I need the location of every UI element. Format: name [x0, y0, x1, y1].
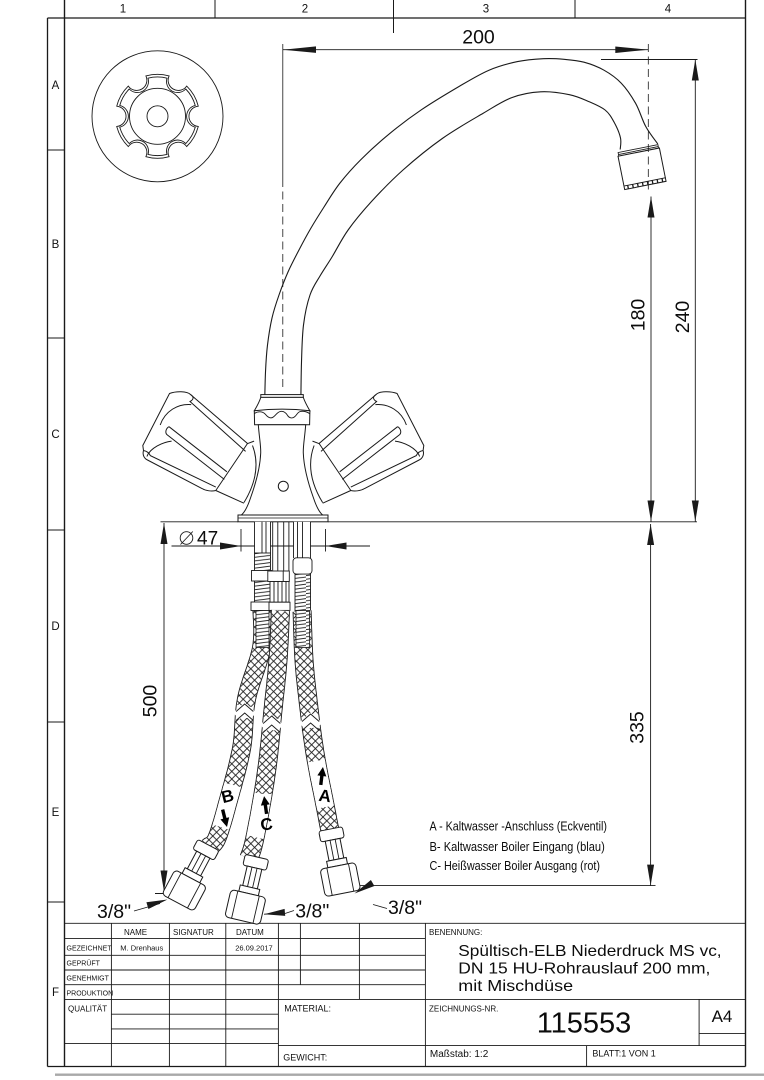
svg-text:SIGNATUR: SIGNATUR — [173, 928, 214, 937]
svg-text:C: C — [259, 814, 274, 835]
svg-text:GENEHMIGT: GENEHMIGT — [67, 976, 110, 983]
svg-text:A: A — [318, 786, 333, 806]
svg-text:GEPRÜFT: GEPRÜFT — [67, 960, 101, 968]
svg-text:B: B — [52, 239, 60, 251]
svg-text:Spültisch-ELB Niederdruck MS v: Spültisch-ELB Niederdruck MS vc, — [458, 943, 721, 960]
svg-text:MATERIAL:: MATERIAL: — [284, 1003, 331, 1013]
svg-text:240: 240 — [672, 301, 694, 334]
svg-text:D: D — [51, 621, 59, 633]
svg-text:Maßstab: 1:2: Maßstab: 1:2 — [430, 1049, 489, 1060]
svg-text:A4: A4 — [712, 1007, 733, 1026]
svg-text:115553: 115553 — [537, 1008, 632, 1040]
svg-text:ZEICHNUNGS-NR.: ZEICHNUNGS-NR. — [429, 1005, 498, 1014]
svg-text:A - Kaltwasser -Anschluss (Eck: A - Kaltwasser -Anschluss (Eckventil) — [430, 820, 608, 834]
svg-text:C- Heißwasser Boiler Ausgang: C- Heißwasser Boiler Ausgang (rot) — [430, 859, 601, 873]
svg-text:4: 4 — [665, 4, 672, 16]
svg-text:335: 335 — [627, 711, 649, 744]
svg-text:180: 180 — [628, 299, 650, 332]
svg-text:3/8": 3/8" — [295, 901, 329, 923]
svg-text:GEZEICHNET: GEZEICHNET — [67, 946, 113, 953]
svg-text:QUALITÄT: QUALITÄT — [68, 1005, 107, 1014]
svg-text:DN 15 HU-Rohrauslauf 200 mm,: DN 15 HU-Rohrauslauf 200 mm, — [458, 961, 710, 978]
svg-text:2: 2 — [302, 4, 308, 16]
svg-text:DATUM: DATUM — [236, 928, 264, 937]
svg-text:47: 47 — [197, 529, 218, 550]
svg-text:BLATT:1 VON 1: BLATT:1 VON 1 — [592, 1049, 655, 1059]
svg-text:26.09.2017: 26.09.2017 — [235, 943, 273, 952]
svg-text:E: E — [52, 807, 60, 819]
svg-text:GEWICHT:: GEWICHT: — [283, 1053, 327, 1063]
svg-text:F: F — [52, 987, 59, 999]
svg-text:BENENNUNG:: BENENNUNG: — [429, 928, 482, 937]
svg-text:B- Kaltwasser Boiler Eingang: B- Kaltwasser Boiler Eingang (blau) — [430, 840, 605, 854]
svg-text:3/8": 3/8" — [388, 897, 422, 919]
svg-text:mit Mischdüse: mit Mischdüse — [458, 978, 573, 995]
svg-text:500: 500 — [140, 685, 162, 718]
svg-text:NAME: NAME — [124, 928, 147, 937]
svg-text:3: 3 — [483, 4, 489, 16]
svg-text:1: 1 — [120, 4, 126, 16]
svg-text:M. Drenhaus: M. Drenhaus — [120, 943, 163, 952]
svg-text:C: C — [51, 429, 59, 441]
svg-text:3/8": 3/8" — [97, 901, 131, 923]
svg-text:A: A — [52, 80, 60, 92]
svg-text:200: 200 — [462, 27, 495, 49]
svg-text:PRODUKTION: PRODUKTION — [67, 990, 114, 997]
